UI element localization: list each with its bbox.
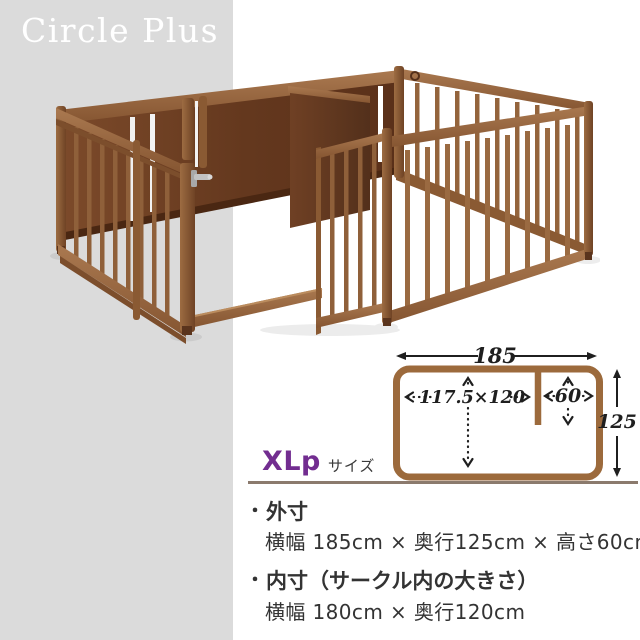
diagram-section-label: 60: [555, 385, 581, 407]
pen-front-right-fence: [386, 101, 593, 324]
spec-bullet: ・: [246, 499, 266, 524]
size-suffix: サイズ: [328, 457, 376, 475]
spec-item-outer: ・ 外寸: [246, 499, 640, 525]
size-label: XLp サイズ: [262, 448, 375, 475]
pen-gate-hinge-post: [382, 128, 392, 324]
brand-logo-text: Circle Plus: [21, 11, 219, 50]
pen-south-corner-post: [180, 163, 195, 335]
pen-doorway-rail: [190, 288, 322, 328]
product-photo-pen: [30, 60, 600, 360]
spec-item-detail: 横幅 185cm × 奥行125cm × 高さ60cm: [265, 530, 640, 555]
pen-divider-panel: [288, 86, 370, 228]
pen-right-end-fence: [394, 66, 590, 256]
size-code: XLp: [262, 448, 321, 475]
spec-item-title: 内寸（サークル内の大きさ）: [266, 568, 538, 594]
spec-item-detail: 横幅 180cm × 奥行120cm: [265, 600, 640, 625]
divider-rule: [248, 481, 638, 484]
spec-item-title: 外寸: [266, 499, 308, 525]
diagram-width-label: 185: [473, 343, 517, 368]
diagram-inner-label: 117.5×120: [419, 388, 525, 408]
spec-item-inner: ・ 内寸（サークル内の大きさ）: [246, 568, 640, 594]
diagram-depth-label: 125: [597, 411, 637, 433]
spec-bullet: ・: [246, 568, 266, 593]
specs-list: ・ 外寸 横幅 185cm × 奥行125cm × 高さ60cm ・ 内寸（サー…: [246, 499, 640, 638]
dimension-diagram: 185 117.5×120 60 125: [380, 335, 640, 485]
